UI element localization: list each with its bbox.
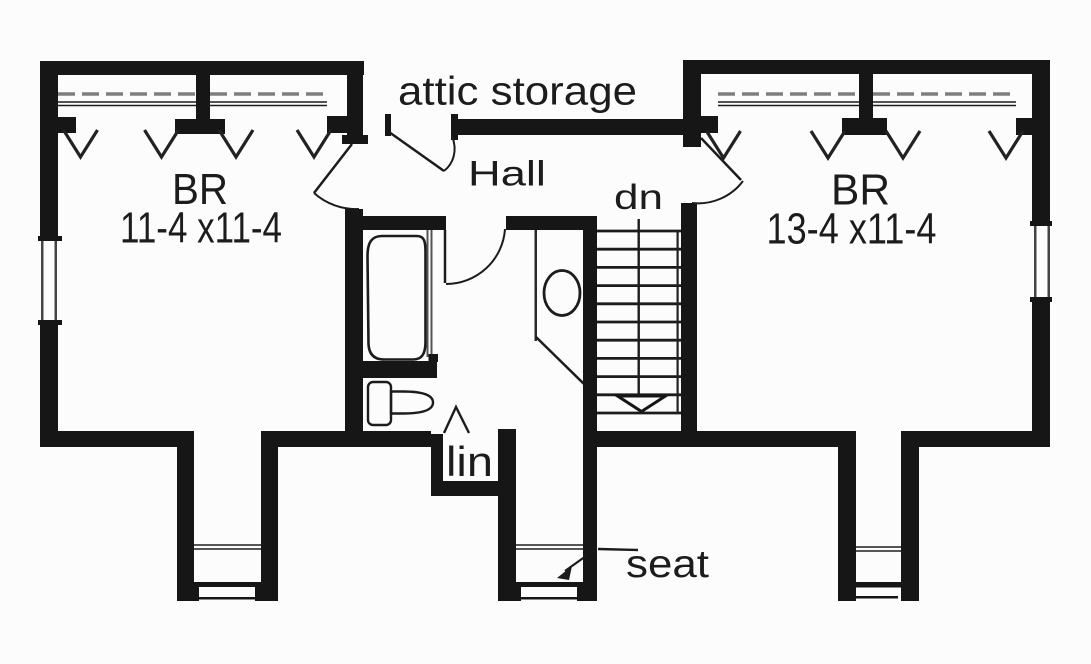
svg-text:attic storage: attic storage <box>398 70 637 114</box>
svg-text:11-4 x11-4: 11-4 x11-4 <box>120 204 282 253</box>
svg-text:dn: dn <box>614 178 663 217</box>
svg-text:lin: lin <box>446 438 493 485</box>
svg-text:13-4 x11-4: 13-4 x11-4 <box>767 205 937 254</box>
svg-text:seat: seat <box>626 543 709 586</box>
svg-text:Hall: Hall <box>468 155 546 194</box>
